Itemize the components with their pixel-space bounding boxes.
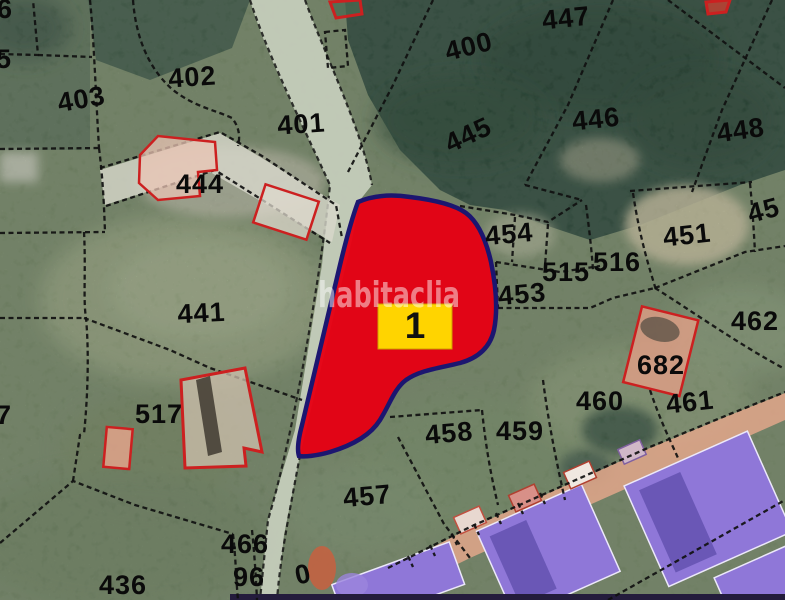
parcel-label-517: 517 (135, 399, 183, 429)
parcel-label-436: 436 (99, 570, 147, 600)
parcel-label-401: 401 (276, 107, 326, 140)
parcel-label-7: 7 (0, 400, 12, 430)
parcel-label-402: 402 (167, 60, 217, 93)
parcel-label-453: 453 (497, 277, 547, 311)
cadastral-map: 4024034014444415174364474004454464484545… (0, 0, 785, 600)
parcel-label-444: 444 (176, 169, 224, 199)
parcel-label-515: 515 (542, 257, 590, 287)
parcel-label-461: 461 (665, 385, 716, 420)
parcel-label-516: 516 (593, 247, 641, 277)
parcel-label-96: 96 (233, 562, 265, 592)
parcel-label-459: 459 (496, 416, 544, 446)
map-canvas: 4024034014444415174364474004454464484545… (0, 0, 785, 600)
parcel-label-446: 446 (571, 102, 622, 137)
parcel-label-447: 447 (541, 1, 592, 36)
watermark: habitaclia (318, 275, 460, 316)
parcel-label-451: 451 (662, 218, 713, 253)
parcel-label-441: 441 (177, 297, 227, 329)
parcel-label-5: 5 (0, 44, 12, 74)
parcel-label-460: 460 (576, 386, 624, 416)
parcel-label-457: 457 (342, 479, 392, 513)
parcel-label-6: 6 (0, 0, 13, 24)
parcel-label-462: 462 (731, 306, 779, 336)
parcel-label-682: 682 (637, 350, 685, 380)
parcel-label-466: 466 (221, 529, 269, 559)
parcel-label-458: 458 (424, 416, 474, 450)
parcel-label-454: 454 (484, 217, 534, 251)
